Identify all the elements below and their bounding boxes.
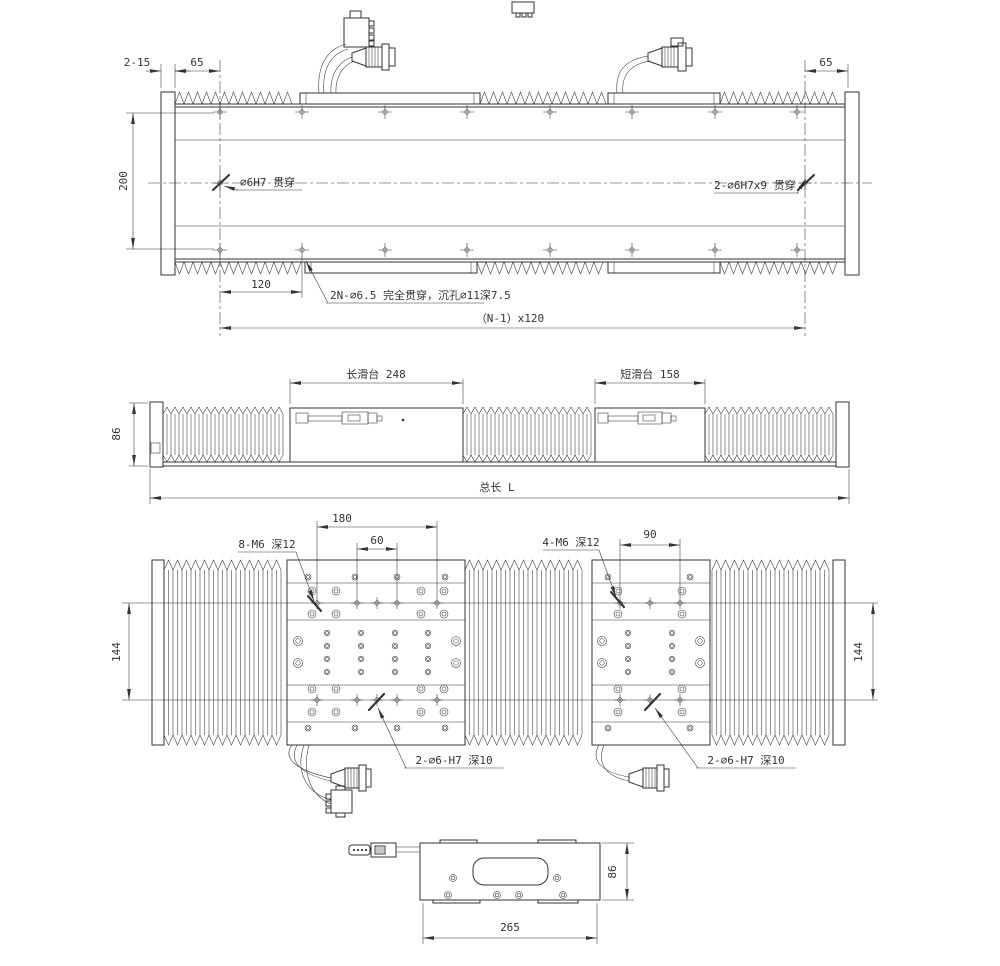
top-long-carriage-plate xyxy=(287,560,465,745)
view-end: 265 86 xyxy=(349,840,634,944)
dim-offset-right-label: 65 xyxy=(819,56,832,69)
end-connector-icon xyxy=(349,843,420,857)
dowel-slash-short xyxy=(645,694,660,710)
round-connector-icon-b xyxy=(648,38,692,71)
top-short-carriage-plate xyxy=(592,560,710,745)
view-front: 86 长滑台 248 短滑台 158 总长 L xyxy=(110,367,849,504)
m6-slash-short xyxy=(611,592,624,607)
dim-front-height-label: 86 xyxy=(110,427,123,440)
dim-offset-left-label: 65 xyxy=(190,56,203,69)
callout-long-m6-label: 8-M6 深12 xyxy=(238,538,295,551)
callout-short-dowel-label: 2-∅6-H7 深10 xyxy=(707,754,784,767)
front-end-plate-left xyxy=(150,402,163,467)
dim-short-span-label: 90 xyxy=(643,528,656,541)
top-carriage-holes xyxy=(294,574,705,731)
plan-end-plate-left xyxy=(161,92,175,275)
front-long-slide-sensor xyxy=(296,412,404,424)
rect-connector-icon-long xyxy=(326,786,352,817)
callout-dowel-left-label: ∅6H7 贯穿 xyxy=(240,175,295,189)
top-cable-long-carriage xyxy=(289,745,331,804)
dim-width-left-label: 144 xyxy=(110,642,123,662)
top-bellows xyxy=(164,560,829,745)
dim-pitch-label: 120 xyxy=(251,278,271,291)
front-short-slide-sensor xyxy=(598,412,676,424)
plan-carriage-strip-long-bottom xyxy=(305,262,477,273)
dim-pattern-length-label: （N-1）x120 xyxy=(476,312,544,325)
end-holes xyxy=(445,875,567,899)
front-bellows xyxy=(163,407,833,462)
dowel-slash-right xyxy=(798,175,814,190)
dim-total-length-label: 总长 L xyxy=(479,480,515,494)
dowel-slash-left xyxy=(213,175,229,190)
dim-plate-thickness-label: 2-15 xyxy=(124,56,151,69)
plan-carriage-strip-short-bottom xyxy=(608,262,720,273)
rect-connector-icon xyxy=(344,11,374,47)
dowel-slash-long xyxy=(369,694,384,710)
plan-cable-short-carriage xyxy=(617,56,650,93)
end-slot xyxy=(473,858,548,885)
top-end-plate-right xyxy=(833,560,845,745)
round-connector-icon-a xyxy=(352,44,395,70)
dim-width-right-label: 144 xyxy=(852,642,865,662)
top-end-plate-left xyxy=(152,560,164,745)
round-connector-icon-long xyxy=(331,765,371,791)
callout-dowel-right-label: 2-∅6H7x9 贯穿 xyxy=(714,178,796,192)
small-connector-icon xyxy=(512,2,534,17)
plan-cable-long-carriage xyxy=(319,44,354,93)
plan-carriage-strip-long-top xyxy=(300,93,480,104)
drawing-sheet: 2-15 65 65 200 ∅6H7 贯穿 2-∅6H7x9 贯穿 2N-∅6… xyxy=(0,0,1000,966)
dim-long-span-label: 180 xyxy=(332,512,352,525)
round-connector-icon-short xyxy=(629,765,669,791)
dim-long-slide-label: 长滑台 248 xyxy=(346,367,406,381)
dim-short-slide-label: 短滑台 158 xyxy=(620,367,680,381)
plan-carriage-strip-short-top xyxy=(608,93,720,104)
front-end-plate-right xyxy=(836,402,849,467)
dim-plan-height-label: 200 xyxy=(117,171,130,191)
dim-long-inner-label: 60 xyxy=(370,534,383,547)
top-cable-short-carriage xyxy=(596,745,629,781)
dim-end-width-label: 265 xyxy=(500,921,520,934)
front-plate-notch xyxy=(151,443,160,453)
view-plan: 2-15 65 65 200 ∅6H7 贯穿 2-∅6H7x9 贯穿 2N-∅6… xyxy=(117,2,872,336)
plan-end-plate-right xyxy=(845,92,859,275)
callout-long-dowel-label: 2-∅6-H7 深10 xyxy=(415,754,492,767)
drawing-canvas: 2-15 65 65 200 ∅6H7 贯穿 2-∅6H7x9 贯穿 2N-∅6… xyxy=(0,0,1000,966)
view-top: 8-M6 深12 180 60 4-M6 深12 90 144 144 2-∅6… xyxy=(110,512,878,817)
dim-end-height-label: 86 xyxy=(606,865,619,878)
callout-short-m6-label: 4-M6 深12 xyxy=(542,536,599,549)
callout-mount-holes-label: 2N-∅6.5 完全贯穿，沉孔∅11深7.5 xyxy=(330,288,511,302)
